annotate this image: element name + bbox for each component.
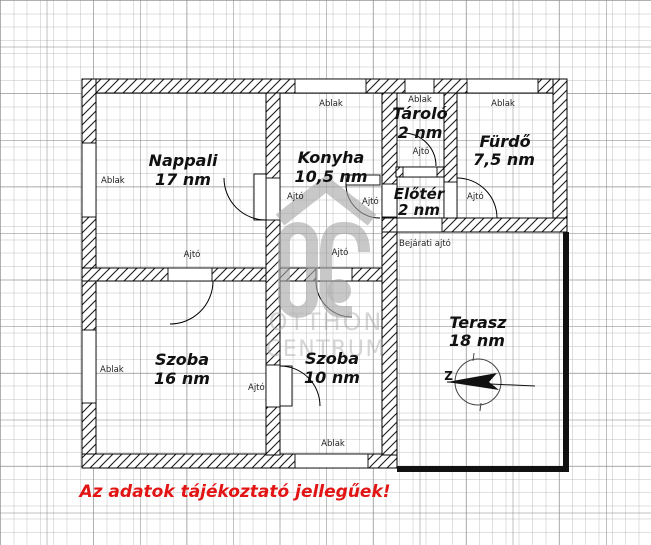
door-tag-nappali-szoba16: Ajtó [184, 249, 201, 260]
door-tag-furdo: Ajtó [467, 191, 484, 202]
window-nappali-left [82, 143, 96, 217]
room-label-terasz: Terasz 18 nm [449, 313, 507, 350]
room-area: 10 nm [304, 368, 360, 387]
room-area: 10,5 nm [294, 167, 367, 186]
terrace-border [397, 232, 566, 469]
door-opening-tarolo [403, 167, 437, 177]
wall-right-outer [553, 79, 567, 232]
door-tag-konyha-eloter: Ajtó [362, 196, 379, 207]
window-tarolo-top [405, 79, 434, 93]
door-opening-nappali-szoba16 [168, 268, 212, 281]
door-tag-szoba16-szoba10: Ajtó [248, 382, 265, 393]
compass-icon: Z [444, 353, 535, 411]
window-tag-tarolo: Ablak [408, 95, 432, 105]
window-tag-furdo: Ablak [491, 99, 515, 109]
room-label-tarolo: Tároló 2 nm [392, 104, 447, 142]
room-label-konyha: Konyha 10,5 nm [294, 148, 367, 186]
room-label-szoba10: Szoba 10 nm [304, 349, 360, 387]
wall-vertical-center-right [382, 93, 397, 455]
door-tag-tarolo: Ajtó [413, 146, 430, 157]
room-name: Fürdő [479, 132, 530, 151]
floor-plan-drawing: OTTHON CENTRUM Nappali 17 nm Konyha 10,5… [0, 0, 651, 545]
compass-arrow [447, 373, 499, 390]
room-area: 2 nm [398, 201, 440, 219]
room-area: 7,5 nm [473, 150, 535, 169]
door-tag-nappali-konyha: Ajtó [287, 191, 304, 202]
window-tag-nappali: Ablak [101, 176, 125, 186]
window-tag-konyha: Ablak [319, 99, 343, 109]
watermark-word-otthon: OTTHON [269, 308, 384, 336]
room-label-furdo: Fürdő 7,5 nm [473, 132, 535, 169]
room-label-szoba16: Szoba 16 nm [154, 350, 210, 388]
room-name: Konyha [298, 148, 365, 167]
window-tag-szoba10: Ablak [321, 439, 345, 449]
room-label-nappali: Nappali 17 nm [149, 151, 218, 189]
door-opening-eloter-furdo [444, 182, 457, 218]
disclaimer-text: Az adatok tájékoztató jellegűek! [77, 482, 390, 502]
window-szoba16-left [82, 330, 96, 403]
room-name: Tároló [392, 104, 447, 123]
room-area: 16 nm [154, 369, 210, 388]
room-area: 17 nm [155, 170, 211, 189]
room-name: Szoba [155, 350, 209, 369]
floor-plan-page: OTTHON CENTRUM Nappali 17 nm Konyha 10,5… [0, 0, 651, 545]
window-furdo-top [467, 79, 538, 93]
room-name: Terasz [449, 313, 507, 332]
watermark-roof-icon [280, 184, 372, 220]
door-arc-nappali-szoba16 [170, 281, 213, 324]
room-name: Nappali [149, 151, 218, 170]
door-leaf-szoba10 [280, 366, 292, 406]
room-name: Szoba [305, 349, 359, 368]
door-opening-entrance [397, 218, 442, 232]
window-tag-szoba16: Ablak [100, 365, 124, 375]
compass-center-dot [480, 380, 483, 383]
window-konyha-top [295, 79, 366, 93]
door-tag-konyha-szoba10: Ajtó [332, 247, 349, 258]
room-area: 2 nm [398, 123, 443, 142]
window-szoba10-bottom [295, 454, 368, 468]
entrance-door-tag: Bejárati ajtó [399, 238, 451, 249]
door-leaf-nappali [254, 174, 266, 220]
door-opening-szoba16-szoba10 [266, 365, 280, 407]
watermark-dot [327, 279, 351, 303]
compass-north-label: Z [444, 369, 453, 383]
room-label-eloter: Előtér 2 nm [394, 185, 446, 219]
room-area: 18 nm [449, 331, 505, 350]
